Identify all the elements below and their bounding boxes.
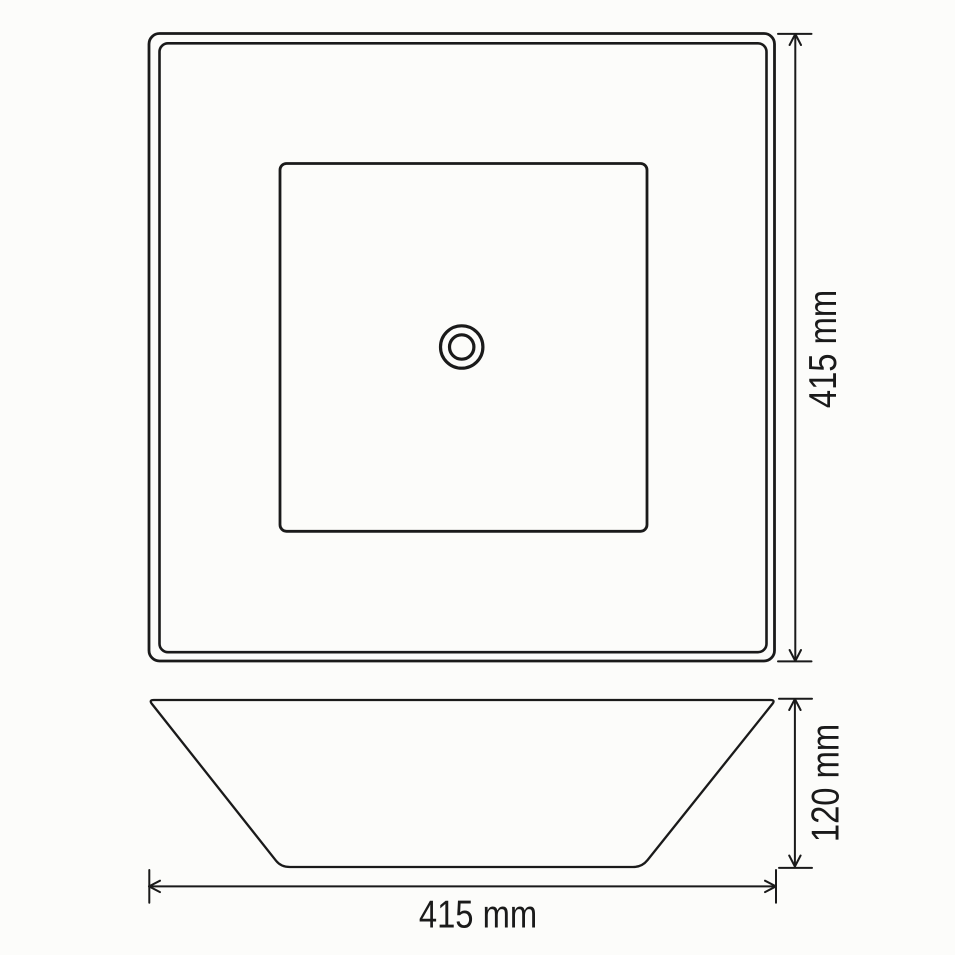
- svg-text:120 mm: 120 mm: [803, 724, 847, 842]
- svg-text:415 mm: 415 mm: [419, 892, 537, 936]
- svg-text:415 mm: 415 mm: [800, 290, 844, 408]
